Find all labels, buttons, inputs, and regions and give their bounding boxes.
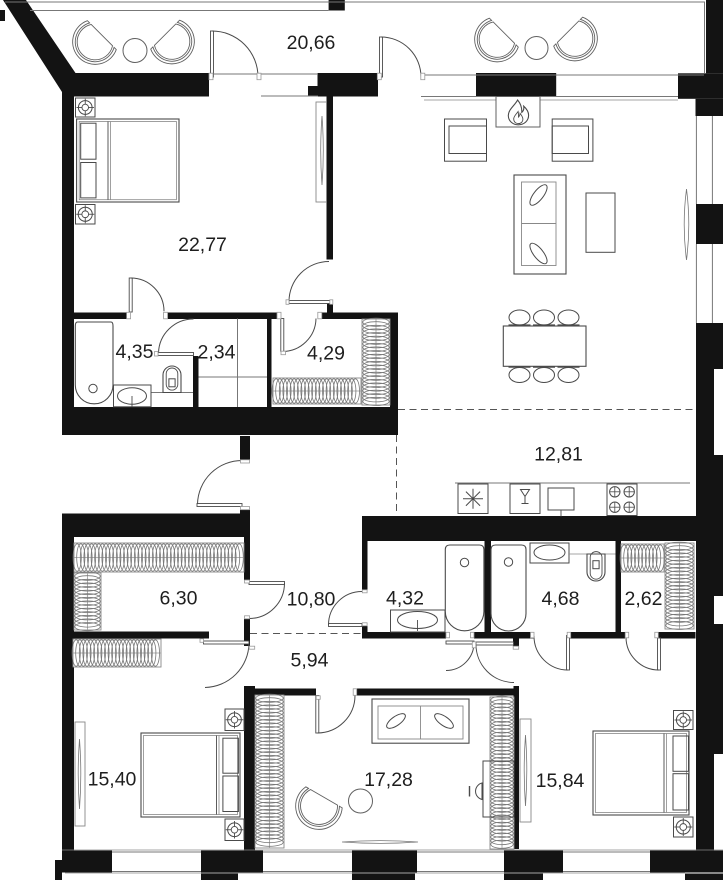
svg-text:15,84: 15,84 <box>536 770 585 792</box>
svg-text:6,30: 6,30 <box>160 588 198 610</box>
svg-text:12,81: 12,81 <box>534 444 583 466</box>
svg-text:20,66: 20,66 <box>287 32 336 54</box>
svg-text:10,80: 10,80 <box>287 589 336 611</box>
svg-text:4,32: 4,32 <box>386 588 424 610</box>
svg-text:17,28: 17,28 <box>364 769 413 791</box>
svg-text:4,29: 4,29 <box>307 343 345 365</box>
svg-text:4,35: 4,35 <box>116 341 154 363</box>
svg-text:2,34: 2,34 <box>198 342 236 364</box>
svg-text:15,40: 15,40 <box>88 769 137 791</box>
svg-text:2,62: 2,62 <box>625 588 663 610</box>
svg-text:22,77: 22,77 <box>178 234 227 256</box>
svg-text:5,94: 5,94 <box>291 650 329 672</box>
svg-text:4,68: 4,68 <box>542 588 580 610</box>
